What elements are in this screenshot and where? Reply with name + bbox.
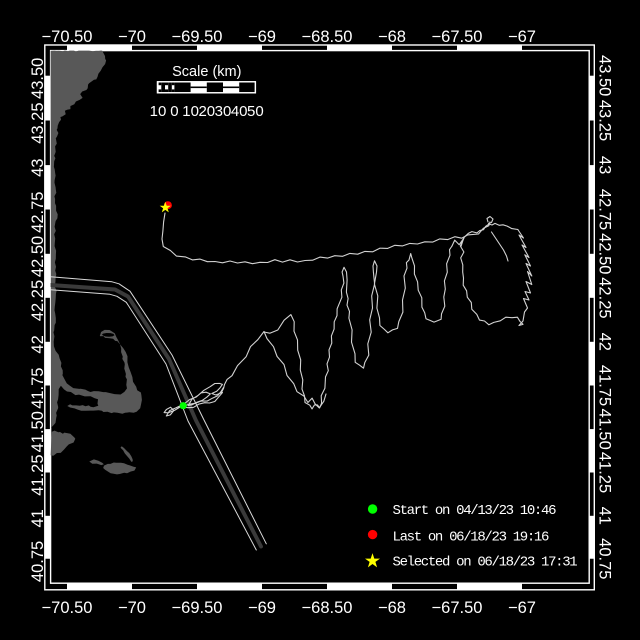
svg-text:−69.50: −69.50	[172, 28, 223, 46]
svg-text:10: 10	[182, 103, 199, 120]
svg-text:43.50: 43.50	[596, 55, 614, 96]
svg-text:Last on 06/18/23 19:16: Last on 06/18/23 19:16	[393, 530, 549, 546]
svg-text:−68.50: −68.50	[302, 599, 353, 617]
svg-text:41.25: 41.25	[596, 452, 614, 493]
svg-text:43: 43	[29, 159, 47, 177]
svg-text:−67.50: −67.50	[432, 599, 483, 617]
svg-text:−69: −69	[248, 599, 276, 617]
svg-text:−69: −69	[248, 28, 276, 46]
svg-text:40: 40	[231, 103, 248, 120]
svg-text:−69.50: −69.50	[172, 599, 223, 617]
svg-text:−68.50: −68.50	[302, 28, 353, 46]
svg-text:41.75: 41.75	[596, 365, 614, 406]
svg-text:20: 20	[198, 103, 215, 120]
svg-text:41.50: 41.50	[29, 411, 47, 452]
svg-text:50: 50	[247, 103, 264, 120]
svg-text:41.50: 41.50	[596, 408, 614, 449]
svg-text:Start on 04/13/23 10:46: Start on 04/13/23 10:46	[393, 503, 557, 519]
svg-text:41.25: 41.25	[29, 454, 47, 495]
svg-text:42.75: 42.75	[29, 192, 47, 233]
svg-text:40.75: 40.75	[596, 538, 614, 579]
svg-text:−67: −67	[508, 28, 536, 46]
svg-text:41: 41	[596, 507, 614, 525]
svg-text:Selected on 06/18/23 17:31: Selected on 06/18/23 17:31	[393, 555, 578, 571]
svg-text:−68: −68	[378, 28, 406, 46]
svg-text:42.50: 42.50	[596, 233, 614, 274]
svg-text:42.75: 42.75	[596, 189, 614, 230]
svg-text:43.25: 43.25	[596, 100, 614, 141]
svg-text:−67: −67	[508, 599, 536, 617]
svg-text:10: 10	[150, 103, 167, 120]
svg-text:Scale (km): Scale (km)	[172, 64, 241, 80]
svg-text:−70: −70	[118, 599, 146, 617]
svg-text:0: 0	[170, 103, 178, 120]
svg-text:42.25: 42.25	[29, 280, 47, 321]
svg-text:42: 42	[596, 333, 614, 351]
svg-text:−67.50: −67.50	[432, 28, 483, 46]
svg-text:43.50: 43.50	[29, 58, 47, 99]
svg-text:43: 43	[596, 156, 614, 174]
svg-text:30: 30	[215, 103, 232, 120]
svg-text:40.75: 40.75	[29, 541, 47, 582]
svg-text:42: 42	[29, 335, 47, 353]
svg-text:43.25: 43.25	[29, 102, 47, 143]
svg-text:41: 41	[29, 509, 47, 527]
svg-text:41.75: 41.75	[29, 368, 47, 409]
svg-text:−70.50: −70.50	[42, 599, 93, 617]
svg-text:−68: −68	[378, 599, 406, 617]
svg-text:−70: −70	[118, 28, 146, 46]
svg-text:−70.50: −70.50	[42, 28, 93, 46]
svg-text:42.25: 42.25	[596, 277, 614, 318]
svg-text:42.50: 42.50	[29, 236, 47, 277]
